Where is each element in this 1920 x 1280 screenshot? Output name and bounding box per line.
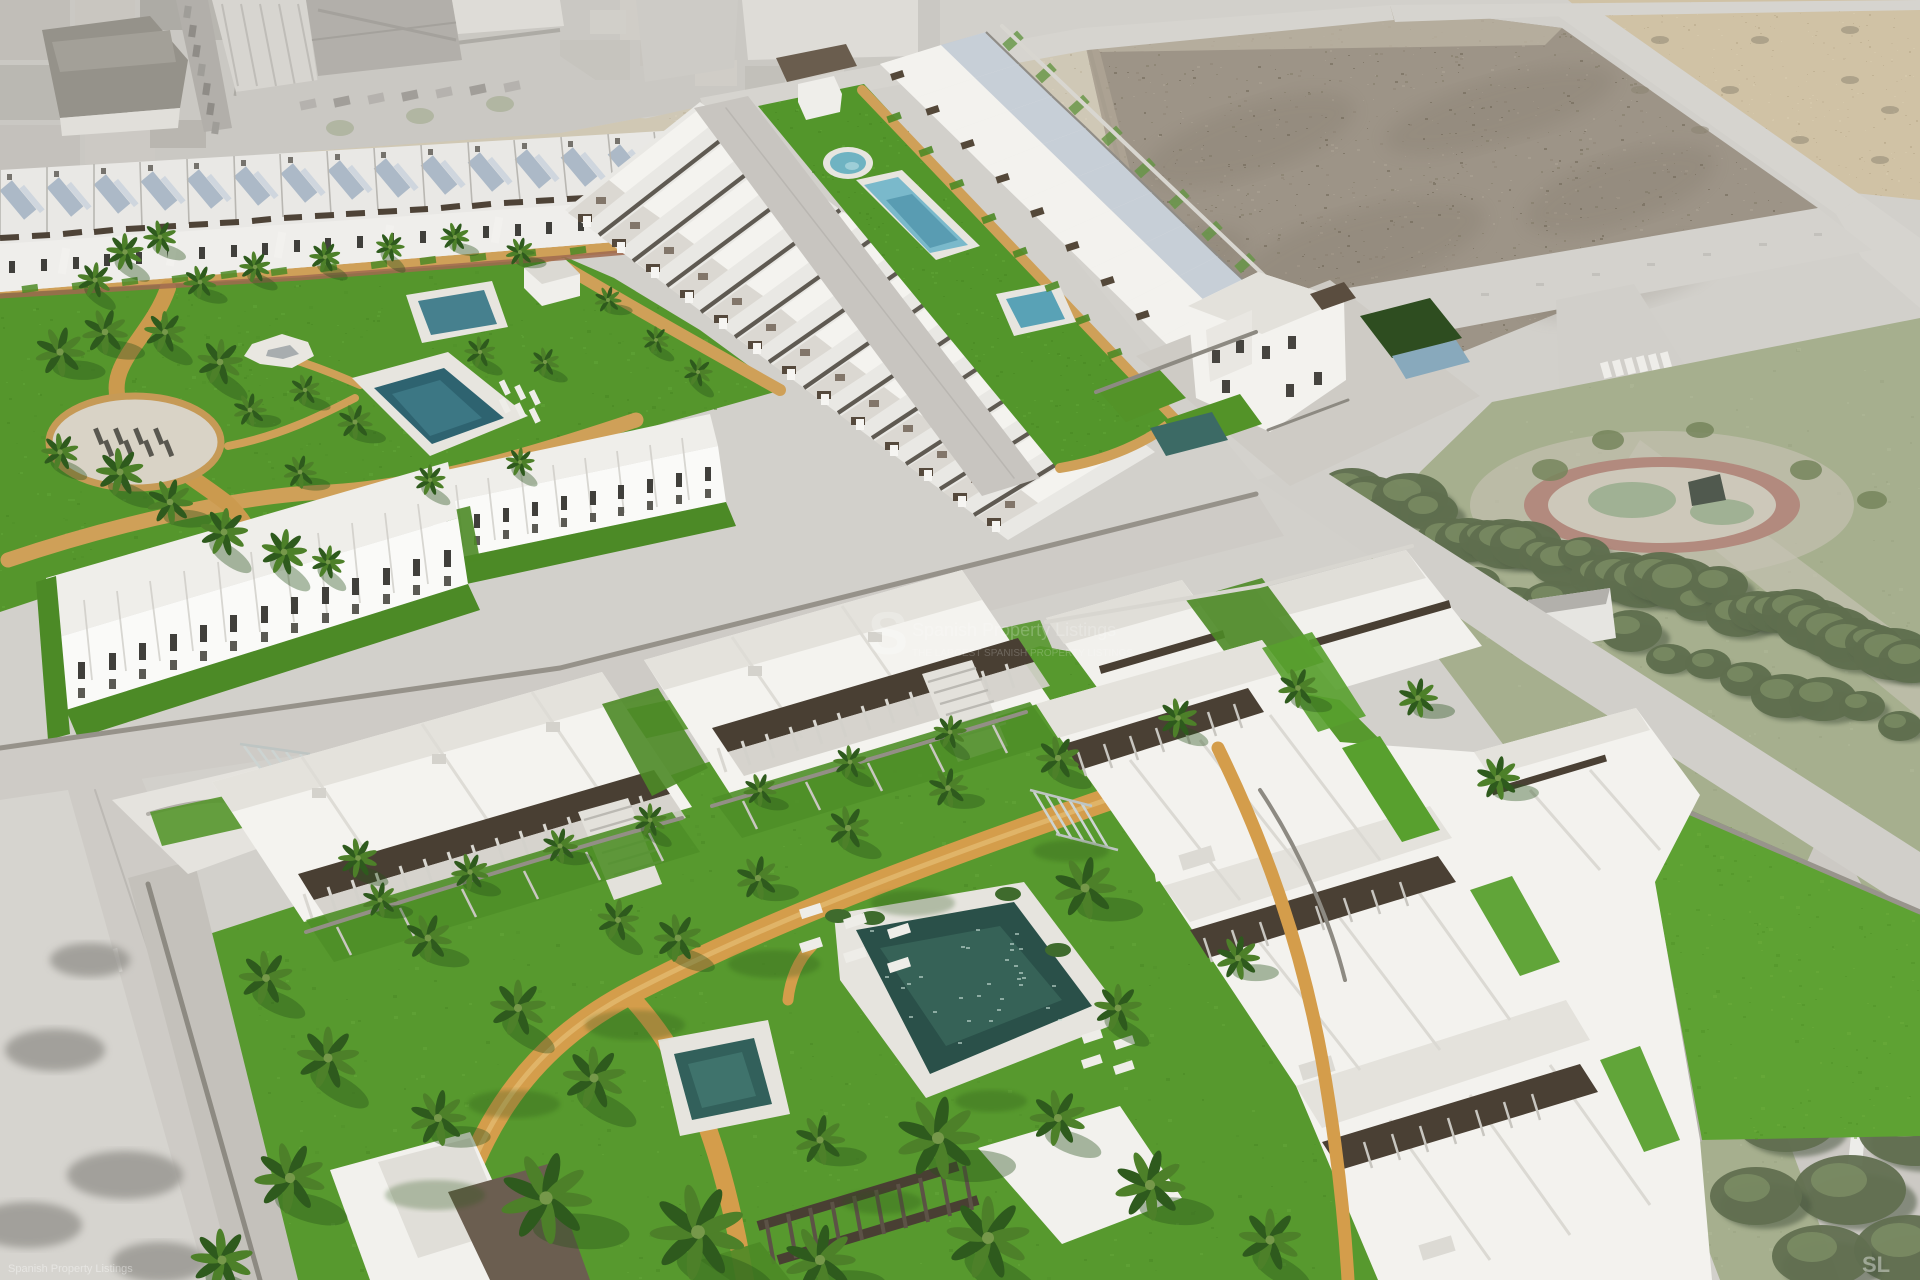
svg-text:Spanish Property Listings: Spanish Property Listings xyxy=(912,620,1116,640)
svg-text:THE LARGEST SPANISH PROPERTY L: THE LARGEST SPANISH PROPERTY LISTINGS xyxy=(912,648,1133,659)
svg-text:S: S xyxy=(868,600,908,667)
svg-text:SL: SL xyxy=(1862,1252,1890,1277)
svg-text:Spanish Property Listings: Spanish Property Listings xyxy=(8,1263,133,1275)
